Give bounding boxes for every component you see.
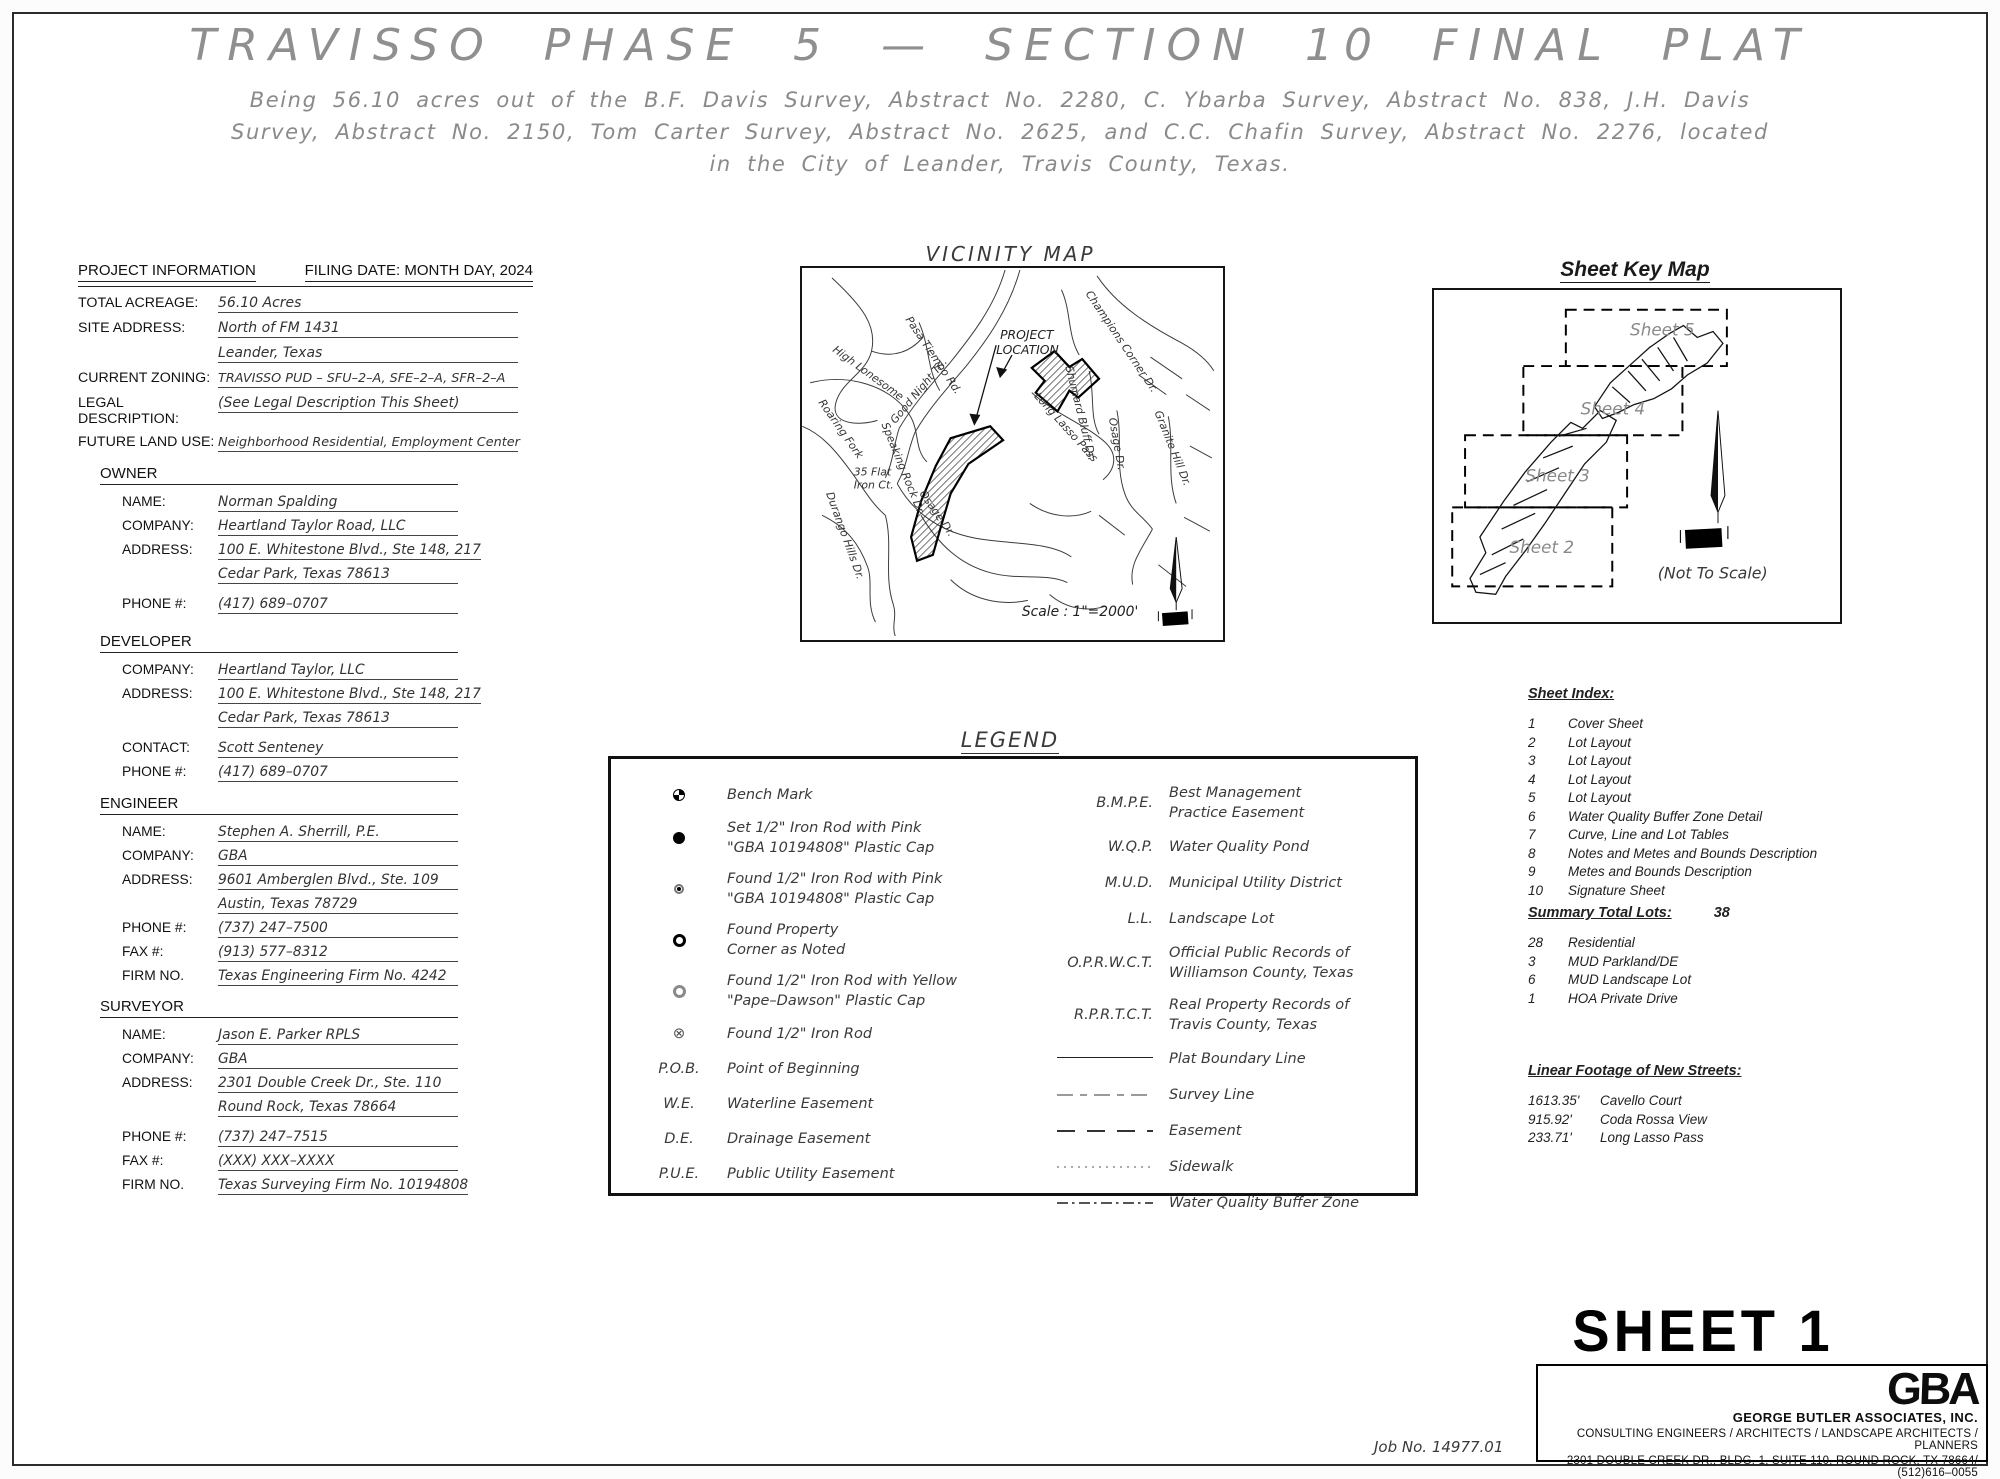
row-label: FAX #: <box>122 944 218 959</box>
sheet-key-map-drawing: Sheet 5 Sheet 4 Sheet 3 Sheet 2 (Not To … <box>1434 290 1836 618</box>
legend-text: Plat Boundary Line <box>1169 1049 1401 1069</box>
sheet-index-row: 2Lot Layout <box>1528 734 1868 753</box>
sheet-key-map: Sheet 5 Sheet 4 Sheet 3 Sheet 2 (Not To … <box>1432 288 1842 624</box>
row-label: ADDRESS: <box>122 1075 218 1090</box>
field-site-address: SITE ADDRESS: North of FM 1431 <box>78 320 533 338</box>
plat-boundary-line-icon <box>1057 1057 1153 1061</box>
owner-address-row: ADDRESS: 100 E. Whitestone Blvd., Ste 14… <box>122 542 458 560</box>
street-label: Roaring Fork <box>816 397 867 462</box>
vicinity-map: Pasa Tiempo Rd. High Lonesome Good Night… <box>800 266 1225 642</box>
lot-count: 6 <box>1528 971 1568 990</box>
row-value: Round Rock, Texas 78664 <box>218 1099 458 1117</box>
row-value: (417) 689–0707 <box>218 596 458 614</box>
engineer-firm-row: FIRM NO. Texas Engineering Firm No. 4242 <box>122 968 458 986</box>
engineer-name-row: NAME: Stephen A. Sherrill, P.E. <box>122 824 458 842</box>
row-value: Stephen A. Sherrill, P.E. <box>218 824 458 842</box>
row-value: Austin, Texas 78729 <box>218 896 458 914</box>
legend-text-line1: Best Management <box>1169 783 1401 803</box>
row-label: COMPANY: <box>122 1051 218 1066</box>
developer-phone-row: PHONE #: (417) 689–0707 <box>122 764 458 782</box>
linear-footage-row: 1613.35'Cavello Court <box>1528 1092 1868 1111</box>
field-future-land-use: FUTURE LAND USE: Neighborhood Residentia… <box>78 434 533 452</box>
legend-text-line2: "Pape–Dawson" Plastic Cap <box>727 991 1003 1011</box>
north-arrow-icon <box>1680 411 1727 549</box>
legend-text: Found 1/2" Iron Rod with Pink"GBA 101948… <box>727 869 1003 909</box>
company-address: 2301 DOUBLE CREEK DR., BLDG. 1, SUITE 11… <box>1546 1455 1978 1479</box>
legend-text: Survey Line <box>1169 1085 1401 1105</box>
row-label: ADDRESS: <box>122 872 218 887</box>
legend-row-pob: P.O.B. Point of Beginning <box>641 1055 1003 1083</box>
legend-abbr: P.U.E. <box>641 1166 717 1182</box>
legend-text-line2: "GBA 10194808" Plastic Cap <box>727 838 1003 858</box>
legend-text: Official Public Records ofWilliamson Cou… <box>1169 943 1401 983</box>
subtitle-line-3: in the City of Leander, Travis County, T… <box>0 148 2000 180</box>
set-iron-rod-icon <box>673 832 685 844</box>
row-value: Heartland Taylor Road, LLC <box>218 518 458 536</box>
engineer-header: ENGINEER <box>100 795 458 815</box>
row-label: ADDRESS: <box>122 542 218 557</box>
legend-row-found-iron-rod-pink: Found 1/2" Iron Rod with Pink"GBA 101948… <box>641 867 1003 911</box>
developer-contact-row: CONTACT: Scott Senteney <box>122 740 458 758</box>
row-value: Cedar Park, Texas 78613 <box>218 710 458 728</box>
sheet-number: 1 <box>1528 715 1568 734</box>
sheet-title: Signature Sheet <box>1568 882 1665 901</box>
filing-date: FILING DATE: MONTH DAY, 2024 <box>305 262 533 282</box>
legend-text: Point of Beginning <box>727 1059 1003 1079</box>
company-services: CONSULTING ENGINEERS / ARCHITECTS / LAND… <box>1546 1428 1978 1452</box>
sheet-number: 9 <box>1528 863 1568 882</box>
row-label: FAX #: <box>122 1153 218 1168</box>
row-label: PHONE #: <box>122 764 218 779</box>
owner-address-row-2: Cedar Park, Texas 78613 <box>122 566 458 584</box>
street-length: 915.92' <box>1528 1111 1600 1130</box>
sheet-key-map-title: Sheet Key Map <box>1432 258 1838 282</box>
row-label: PHONE #: <box>122 920 218 935</box>
street-label: 35 Flat <box>854 466 892 479</box>
sheet-number-label: SHEET 1 <box>1548 1297 1858 1365</box>
street-label: Granite Hill Dr. <box>1152 409 1194 488</box>
legend-abbr: D.E. <box>641 1131 717 1147</box>
legend-row-wqp: W.Q.P. Water Quality Pond <box>1003 833 1401 861</box>
owner-name-row: NAME: Norman Spalding <box>122 494 458 512</box>
developer-header: DEVELOPER <box>100 633 458 653</box>
row-label: FIRM NO. <box>122 968 218 983</box>
field-label: CURRENT ZONING: <box>78 370 218 386</box>
sidewalk-line-icon <box>1057 1166 1153 1168</box>
legend-text-line1: Real Property Records of <box>1169 995 1401 1015</box>
owner-header: OWNER <box>100 465 458 485</box>
legend-abbr: P.O.B. <box>641 1061 717 1077</box>
vicinity-scale-label: Scale : 1"=2000' <box>1022 604 1138 620</box>
developer-block: DEVELOPER COMPANY: Heartland Taylor, LLC… <box>100 633 458 782</box>
legend-text: Water Quality Buffer Zone <box>1169 1193 1401 1213</box>
row-label: NAME: <box>122 494 218 509</box>
legend-abbr: O.P.R.W.C.T. <box>1003 955 1153 971</box>
lot-count: 1 <box>1528 990 1568 1009</box>
legend-text-line1: Set 1/2" Iron Rod with Pink <box>727 818 1003 838</box>
sheet-index-row: 3Lot Layout <box>1528 752 1868 771</box>
row-value: GBA <box>218 848 458 866</box>
sheet-title: Lot Layout <box>1568 734 1631 753</box>
legend-text: Found PropertyCorner as Noted <box>727 920 1003 960</box>
legend-text-line2: Williamson County, Texas <box>1169 963 1401 983</box>
legend-row-wqbz: Water Quality Buffer Zone <box>1003 1189 1401 1217</box>
sheet-index-block: Sheet Index: 1Cover Sheet 2Lot Layout 3L… <box>1528 686 1868 900</box>
surveyor-address-row-2: Round Rock, Texas 78664 <box>122 1099 458 1117</box>
sheet-number: 5 <box>1528 789 1568 808</box>
field-label: SITE ADDRESS: <box>78 320 218 336</box>
street-label: Osage Dr. <box>1106 417 1128 472</box>
vicinity-map-title: VICINITY MAP <box>800 242 1221 266</box>
plat-subtitle: Being 56.10 acres out of the B.F. Davis … <box>0 84 2000 180</box>
linear-footage-row: 233.71'Long Lasso Pass <box>1528 1129 1868 1148</box>
legend-row-we: W.E. Waterline Easement <box>641 1090 1003 1118</box>
legend-text-line1: Found 1/2" Iron Rod with Pink <box>727 869 1003 889</box>
survey-line-icon <box>1057 1094 1153 1096</box>
summary-title: Summary Total Lots: <box>1528 905 1672 921</box>
field-label: FUTURE LAND USE: <box>78 434 218 450</box>
legend-abbr: W.E. <box>641 1096 717 1112</box>
linear-footage-block: Linear Footage of New Streets: 1613.35'C… <box>1528 1063 1868 1148</box>
summary-total: 38 <box>1714 905 1730 921</box>
sheet-number: 10 <box>1528 882 1568 901</box>
row-value: (417) 689–0707 <box>218 764 458 782</box>
legend-row-survey-line: Survey Line <box>1003 1081 1401 1109</box>
sheet-index-row: 10Signature Sheet <box>1528 882 1868 901</box>
sheet-index-row: 6Water Quality Buffer Zone Detail <box>1528 808 1868 827</box>
project-information-header: PROJECT INFORMATION FILING DATE: MONTH D… <box>78 262 533 282</box>
legend-row-ll: L.L. Landscape Lot <box>1003 905 1401 933</box>
legend: Bench Mark Set 1/2" Iron Rod with Pink"G… <box>608 756 1418 1196</box>
row-value: Texas Engineering Firm No. 4242 <box>218 968 458 986</box>
sheet-label: Sheet 2 <box>1510 537 1575 557</box>
surveyor-header: SURVEYOR <box>100 998 458 1018</box>
row-label: PHONE #: <box>122 1129 218 1144</box>
sheet-index-row: 7Curve, Line and Lot Tables <box>1528 826 1868 845</box>
legend-text-line1: Found Property <box>727 920 1003 940</box>
owner-block: OWNER NAME: Norman Spalding COMPANY: Hea… <box>100 465 458 614</box>
surveyor-name-row: NAME: Jason E. Parker RPLS <box>122 1027 458 1045</box>
surveyor-block: SURVEYOR NAME: Jason E. Parker RPLS COMP… <box>100 998 458 1195</box>
sheet-title: Notes and Metes and Bounds Description <box>1568 845 1817 864</box>
project-label-line2: LOCATION <box>996 343 1059 357</box>
legend-text-line1: Official Public Records of <box>1169 943 1401 963</box>
linear-footage-title: Linear Footage of New Streets: <box>1528 1063 1868 1079</box>
row-label: NAME: <box>122 824 218 839</box>
legend-row-rprtct: R.P.R.T.C.T. Real Property Records ofTra… <box>1003 993 1401 1037</box>
field-value: TRAVISSO PUD – SFU–2–A, SFE–2–A, SFR–2–A <box>218 371 518 388</box>
owner-company-row: COMPANY: Heartland Taylor Road, LLC <box>122 518 458 536</box>
summary-header: Summary Total Lots: 38 <box>1528 905 1868 921</box>
street-label: Iron Ct. <box>854 479 894 492</box>
legend-row-easement: Easement <box>1003 1117 1401 1145</box>
row-label: ADDRESS: <box>122 686 218 701</box>
street-length: 233.71' <box>1528 1129 1600 1148</box>
street-label: Pasa Tiempo Rd. <box>903 314 965 397</box>
found-property-corner-icon <box>673 934 686 947</box>
legend-abbr: L.L. <box>1003 911 1153 927</box>
title-block: GBA GEORGE BUTLER ASSOCIATES, INC. CONSU… <box>1536 1364 1988 1462</box>
found-iron-rod-icon: ⊗ <box>673 1028 686 1040</box>
legend-text-line2: Practice Easement <box>1169 803 1401 823</box>
legend-text: Found 1/2" Iron Rod with Yellow"Pape–Daw… <box>727 971 1003 1011</box>
project-location-label: PROJECT LOCATION <box>996 328 1059 357</box>
engineer-address-row: ADDRESS: 9601 Amberglen Blvd., Ste. 109 <box>122 872 458 890</box>
legend-text-line2: "GBA 10194808" Plastic Cap <box>727 889 1003 909</box>
legend-text-line2: Corner as Noted <box>727 940 1003 960</box>
legend-row-bmpe: B.M.P.E. Best ManagementPractice Easemen… <box>1003 781 1401 825</box>
developer-address-row: ADDRESS: 100 E. Whitestone Blvd., Ste 14… <box>122 686 458 704</box>
sheet-index-title: Sheet Index: <box>1528 686 1868 702</box>
sheet-number: 4 <box>1528 771 1568 790</box>
field-value: Neighborhood Residential, Employment Cen… <box>218 435 518 452</box>
sheet-title: Water Quality Buffer Zone Detail <box>1568 808 1762 827</box>
water-quality-buffer-zone-line-icon <box>1057 1202 1153 1204</box>
surveyor-fax-row: FAX #: (XXX) XXX–XXXX <box>122 1153 458 1171</box>
sheet-index-row: 5Lot Layout <box>1528 789 1868 808</box>
sheet-label: Sheet 3 <box>1525 466 1590 486</box>
legend-row-sidewalk: Sidewalk <box>1003 1153 1401 1181</box>
legend-text: Best ManagementPractice Easement <box>1169 783 1401 823</box>
gba-logo: GBA <box>1886 1368 1978 1410</box>
row-label: CONTACT: <box>122 740 218 755</box>
developer-company-row: COMPANY: Heartland Taylor, LLC <box>122 662 458 680</box>
legend-right-column: B.M.P.E. Best ManagementPractice Easemen… <box>1003 759 1415 1193</box>
row-value: 100 E. Whitestone Blvd., Ste 148, 217 <box>218 542 481 560</box>
job-number: Job No. 14977.01 <box>1374 1438 1526 1456</box>
row-value: Jason E. Parker RPLS <box>218 1027 458 1045</box>
subtitle-line-1: Being 56.10 acres out of the B.F. Davis … <box>0 84 2000 116</box>
engineer-address-row-2: Austin, Texas 78729 <box>122 896 458 914</box>
field-value: North of FM 1431 <box>218 320 518 338</box>
row-value: 100 E. Whitestone Blvd., Ste 148, 217 <box>218 686 481 704</box>
street-name: Cavello Court <box>1600 1092 1682 1111</box>
sheet-number: 3 <box>1528 752 1568 771</box>
sheet-title: Lot Layout <box>1568 789 1631 808</box>
sheet-number: 2 <box>1528 734 1568 753</box>
legend-text-line2: Travis County, Texas <box>1169 1015 1401 1035</box>
legend-text: Set 1/2" Iron Rod with Pink"GBA 10194808… <box>727 818 1003 858</box>
sheet-number: 6 <box>1528 808 1568 827</box>
row-value: Texas Surveying Firm No. 10194808 <box>218 1177 468 1195</box>
legend-text: Sidewalk <box>1169 1157 1401 1177</box>
engineer-block: ENGINEER NAME: Stephen A. Sherrill, P.E.… <box>100 795 458 986</box>
legend-text: Public Utility Easement <box>727 1164 1003 1184</box>
row-label: COMPANY: <box>122 848 218 863</box>
street-label: High Lonesome <box>830 343 906 403</box>
surveyor-firm-row: FIRM NO. Texas Surveying Firm No. 101948… <box>122 1177 458 1195</box>
field-site-address-line2: Leander, Texas <box>78 345 533 363</box>
developer-address-row-2: Cedar Park, Texas 78613 <box>122 710 458 728</box>
not-to-scale-label: (Not To Scale) <box>1658 563 1768 582</box>
found-iron-rod-yellow-icon <box>673 985 686 998</box>
found-iron-rod-pink-icon <box>674 884 684 894</box>
legend-text-line1: Found 1/2" Iron Rod with Yellow <box>727 971 1003 991</box>
sheet-title: Metes and Bounds Description <box>1568 863 1752 882</box>
summary-row: 3MUD Parkland/DE <box>1528 953 1868 972</box>
legend-title: LEGEND <box>608 728 1412 752</box>
legend-abbr: R.P.R.T.C.T. <box>1003 1007 1153 1023</box>
sheet-index-row: 8Notes and Metes and Bounds Description <box>1528 845 1868 864</box>
summary-row: 28Residential <box>1528 934 1868 953</box>
lot-count: 3 <box>1528 953 1568 972</box>
row-value: (913) 577–8312 <box>218 944 458 962</box>
legend-row-plat-boundary: Plat Boundary Line <box>1003 1045 1401 1073</box>
surveyor-address-row: ADDRESS: 2301 Double Creek Dr., Ste. 110 <box>122 1075 458 1093</box>
street-name: Long Lasso Pass <box>1600 1129 1704 1148</box>
row-value: 9601 Amberglen Blvd., Ste. 109 <box>218 872 458 890</box>
summary-total-lots-block: Summary Total Lots: 38 28Residential 3MU… <box>1528 905 1868 1008</box>
legend-text: Easement <box>1169 1121 1401 1141</box>
field-total-acreage: TOTAL ACREAGE: 56.10 Acres <box>78 295 533 313</box>
engineer-company-row: COMPANY: GBA <box>122 848 458 866</box>
street-name: Coda Rossa View <box>1600 1111 1707 1130</box>
row-value: GBA <box>218 1051 458 1069</box>
row-label: FIRM NO. <box>122 1177 218 1192</box>
lot-type: MUD Parkland/DE <box>1568 953 1678 972</box>
field-value: 56.10 Acres <box>218 295 518 313</box>
sheet-number: 7 <box>1528 826 1568 845</box>
sheet-title: Cover Sheet <box>1568 715 1643 734</box>
header-rule <box>78 286 533 287</box>
legend-row-de: D.E. Drainage Easement <box>641 1125 1003 1153</box>
row-label: COMPANY: <box>122 662 218 677</box>
row-value: Heartland Taylor, LLC <box>218 662 458 680</box>
sheet-index-row: 9Metes and Bounds Description <box>1528 863 1868 882</box>
row-label: PHONE #: <box>122 596 218 611</box>
legend-text: Real Property Records ofTravis County, T… <box>1169 995 1401 1035</box>
project-information-title: PROJECT INFORMATION <box>78 262 256 282</box>
field-label: LEGAL DESCRIPTION: <box>78 395 218 427</box>
legend-row-set-iron-rod: Set 1/2" Iron Rod with Pink"GBA 10194808… <box>641 816 1003 860</box>
sheet-index-row: 1Cover Sheet <box>1528 715 1868 734</box>
sheet-number: 8 <box>1528 845 1568 864</box>
row-label: NAME: <box>122 1027 218 1042</box>
legend-text: Water Quality Pond <box>1169 837 1401 857</box>
sheet-boundary-rects <box>1452 310 1727 587</box>
row-value: (737) 247–7515 <box>218 1129 458 1147</box>
row-value: 2301 Double Creek Dr., Ste. 110 <box>218 1075 458 1093</box>
owner-phone-row: PHONE #: (417) 689–0707 <box>122 596 458 614</box>
sheet-title: Lot Layout <box>1568 752 1631 771</box>
row-value: Scott Senteney <box>218 740 458 758</box>
row-value: (737) 247–7500 <box>218 920 458 938</box>
sheet-label: Sheet 4 <box>1581 398 1646 418</box>
sheet-labels: Sheet 5 Sheet 4 Sheet 3 Sheet 2 <box>1510 319 1695 556</box>
sheet-index-row: 4Lot Layout <box>1528 771 1868 790</box>
lot-type: HOA Private Drive <box>1568 990 1678 1009</box>
north-arrow-icon <box>1158 537 1192 626</box>
field-value: Leander, Texas <box>218 345 518 363</box>
field-label: TOTAL ACREAGE: <box>78 295 218 311</box>
legend-abbr: B.M.P.E. <box>1003 795 1153 811</box>
subtitle-line-2: Survey, Abstract No. 2150, Tom Carter Su… <box>0 116 2000 148</box>
linear-footage-row: 915.92'Coda Rossa View <box>1528 1111 1868 1130</box>
street-length: 1613.35' <box>1528 1092 1600 1111</box>
legend-row-benchmark: Bench Mark <box>641 781 1003 809</box>
legend-text: Drainage Easement <box>727 1129 1003 1149</box>
legend-abbr: M.U.D. <box>1003 875 1153 891</box>
surveyor-company-row: COMPANY: GBA <box>122 1051 458 1069</box>
sheet-title: Curve, Line and Lot Tables <box>1568 826 1729 845</box>
plat-title: TRAVISSO PHASE 5 — SECTION 10 FINAL PLAT <box>0 20 2000 71</box>
street-label: Durango Hills Dr. <box>823 490 867 581</box>
legend-left-column: Bench Mark Set 1/2" Iron Rod with Pink"G… <box>611 759 1003 1193</box>
lot-type: MUD Landscape Lot <box>1568 971 1691 990</box>
sheet-key-map-title-text: Sheet Key Map <box>1560 258 1709 283</box>
legend-text: Waterline Easement <box>727 1094 1003 1114</box>
summary-row: 1HOA Private Drive <box>1528 990 1868 1009</box>
legend-abbr: W.Q.P. <box>1003 839 1153 855</box>
lot-type: Residential <box>1568 934 1635 953</box>
summary-row: 6MUD Landscape Lot <box>1528 971 1868 990</box>
legend-text: Landscape Lot <box>1169 909 1401 929</box>
vicinity-map-drawing: Pasa Tiempo Rd. High Lonesome Good Night… <box>802 268 1219 636</box>
legend-row-pue: P.U.E. Public Utility Easement <box>641 1160 1003 1188</box>
lot-count: 28 <box>1528 934 1568 953</box>
legend-text: Bench Mark <box>727 785 1003 805</box>
engineer-fax-row: FAX #: (913) 577–8312 <box>122 944 458 962</box>
legend-row-found-iron-rod: ⊗ Found 1/2" Iron Rod <box>641 1020 1003 1048</box>
engineer-phone-row: PHONE #: (737) 247–7500 <box>122 920 458 938</box>
legend-title-text: LEGEND <box>961 728 1059 754</box>
project-information-block: PROJECT INFORMATION FILING DATE: MONTH D… <box>78 262 533 452</box>
easement-line-icon <box>1057 1130 1153 1132</box>
row-value: Norman Spalding <box>218 494 458 512</box>
row-label: COMPANY: <box>122 518 218 533</box>
legend-row-found-iron-rod-yellow: Found 1/2" Iron Rod with Yellow"Pape–Daw… <box>641 969 1003 1013</box>
field-legal-description: LEGAL DESCRIPTION: (See Legal Descriptio… <box>78 395 533 427</box>
benchmark-icon <box>673 789 685 801</box>
legend-row-found-property-corner: Found PropertyCorner as Noted <box>641 918 1003 962</box>
row-value: (XXX) XXX–XXXX <box>218 1153 458 1171</box>
field-value: (See Legal Description This Sheet) <box>218 395 518 413</box>
legend-text: Municipal Utility District <box>1169 873 1401 893</box>
legend-row-oprwct: O.P.R.W.C.T. Official Public Records ofW… <box>1003 941 1401 985</box>
sheet-title: Lot Layout <box>1568 771 1631 790</box>
project-label-line1: PROJECT <box>1000 328 1055 342</box>
row-value: Cedar Park, Texas 78613 <box>218 566 458 584</box>
sheet-label: Sheet 5 <box>1630 319 1695 339</box>
legend-row-mud: M.U.D. Municipal Utility District <box>1003 869 1401 897</box>
legend-text: Found 1/2" Iron Rod <box>727 1024 1003 1044</box>
surveyor-phone-row: PHONE #: (737) 247–7515 <box>122 1129 458 1147</box>
field-current-zoning: CURRENT ZONING: TRAVISSO PUD – SFU–2–A, … <box>78 370 533 388</box>
